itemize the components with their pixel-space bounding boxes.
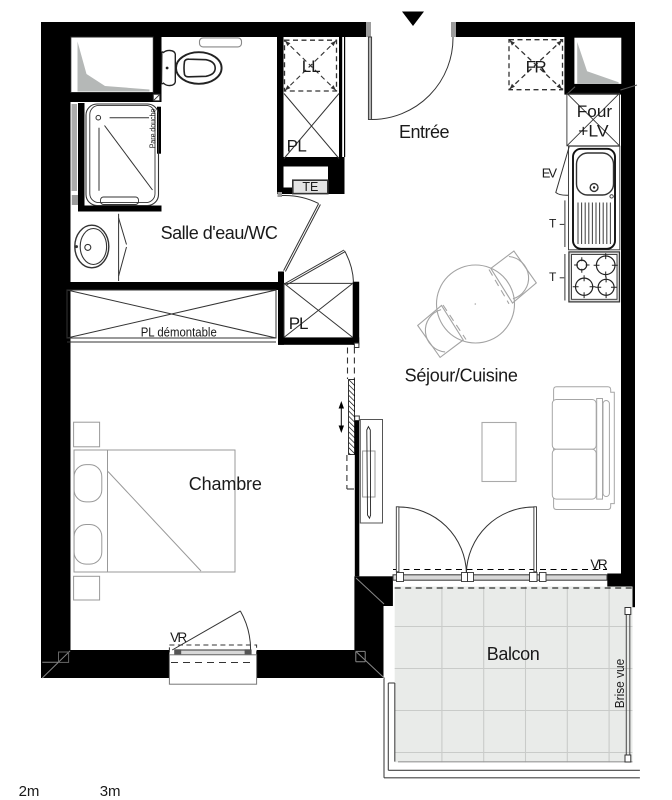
svg-text:Salle d'eau/WC: Salle d'eau/WC (161, 223, 278, 243)
svg-text:PL: PL (287, 137, 307, 156)
svg-text:T: T (549, 270, 557, 284)
svg-text:VR: VR (590, 557, 607, 572)
svg-text:LL: LL (302, 57, 321, 76)
svg-text:PL: PL (289, 314, 309, 333)
svg-text:FR: FR (526, 58, 547, 77)
svg-text:Brise vue: Brise vue (613, 659, 627, 709)
svg-text:Entrée: Entrée (399, 122, 450, 142)
svg-text:VR: VR (170, 630, 187, 645)
svg-text:TE: TE (302, 180, 318, 194)
svg-text:Balcon: Balcon (487, 644, 540, 664)
svg-text:2m: 2m (19, 783, 40, 800)
svg-text:Séjour/Cuisine: Séjour/Cuisine (405, 366, 518, 386)
svg-text:+LV: +LV (578, 121, 609, 140)
svg-text:PL démontable: PL démontable (141, 325, 217, 339)
svg-text:Chambre: Chambre (189, 474, 262, 494)
svg-text:EV: EV (542, 165, 558, 180)
svg-text:T: T (549, 217, 557, 231)
svg-text:3m: 3m (100, 783, 121, 800)
svg-text:Pare douche: Pare douche (147, 109, 157, 149)
svg-text:Four: Four (577, 102, 613, 121)
